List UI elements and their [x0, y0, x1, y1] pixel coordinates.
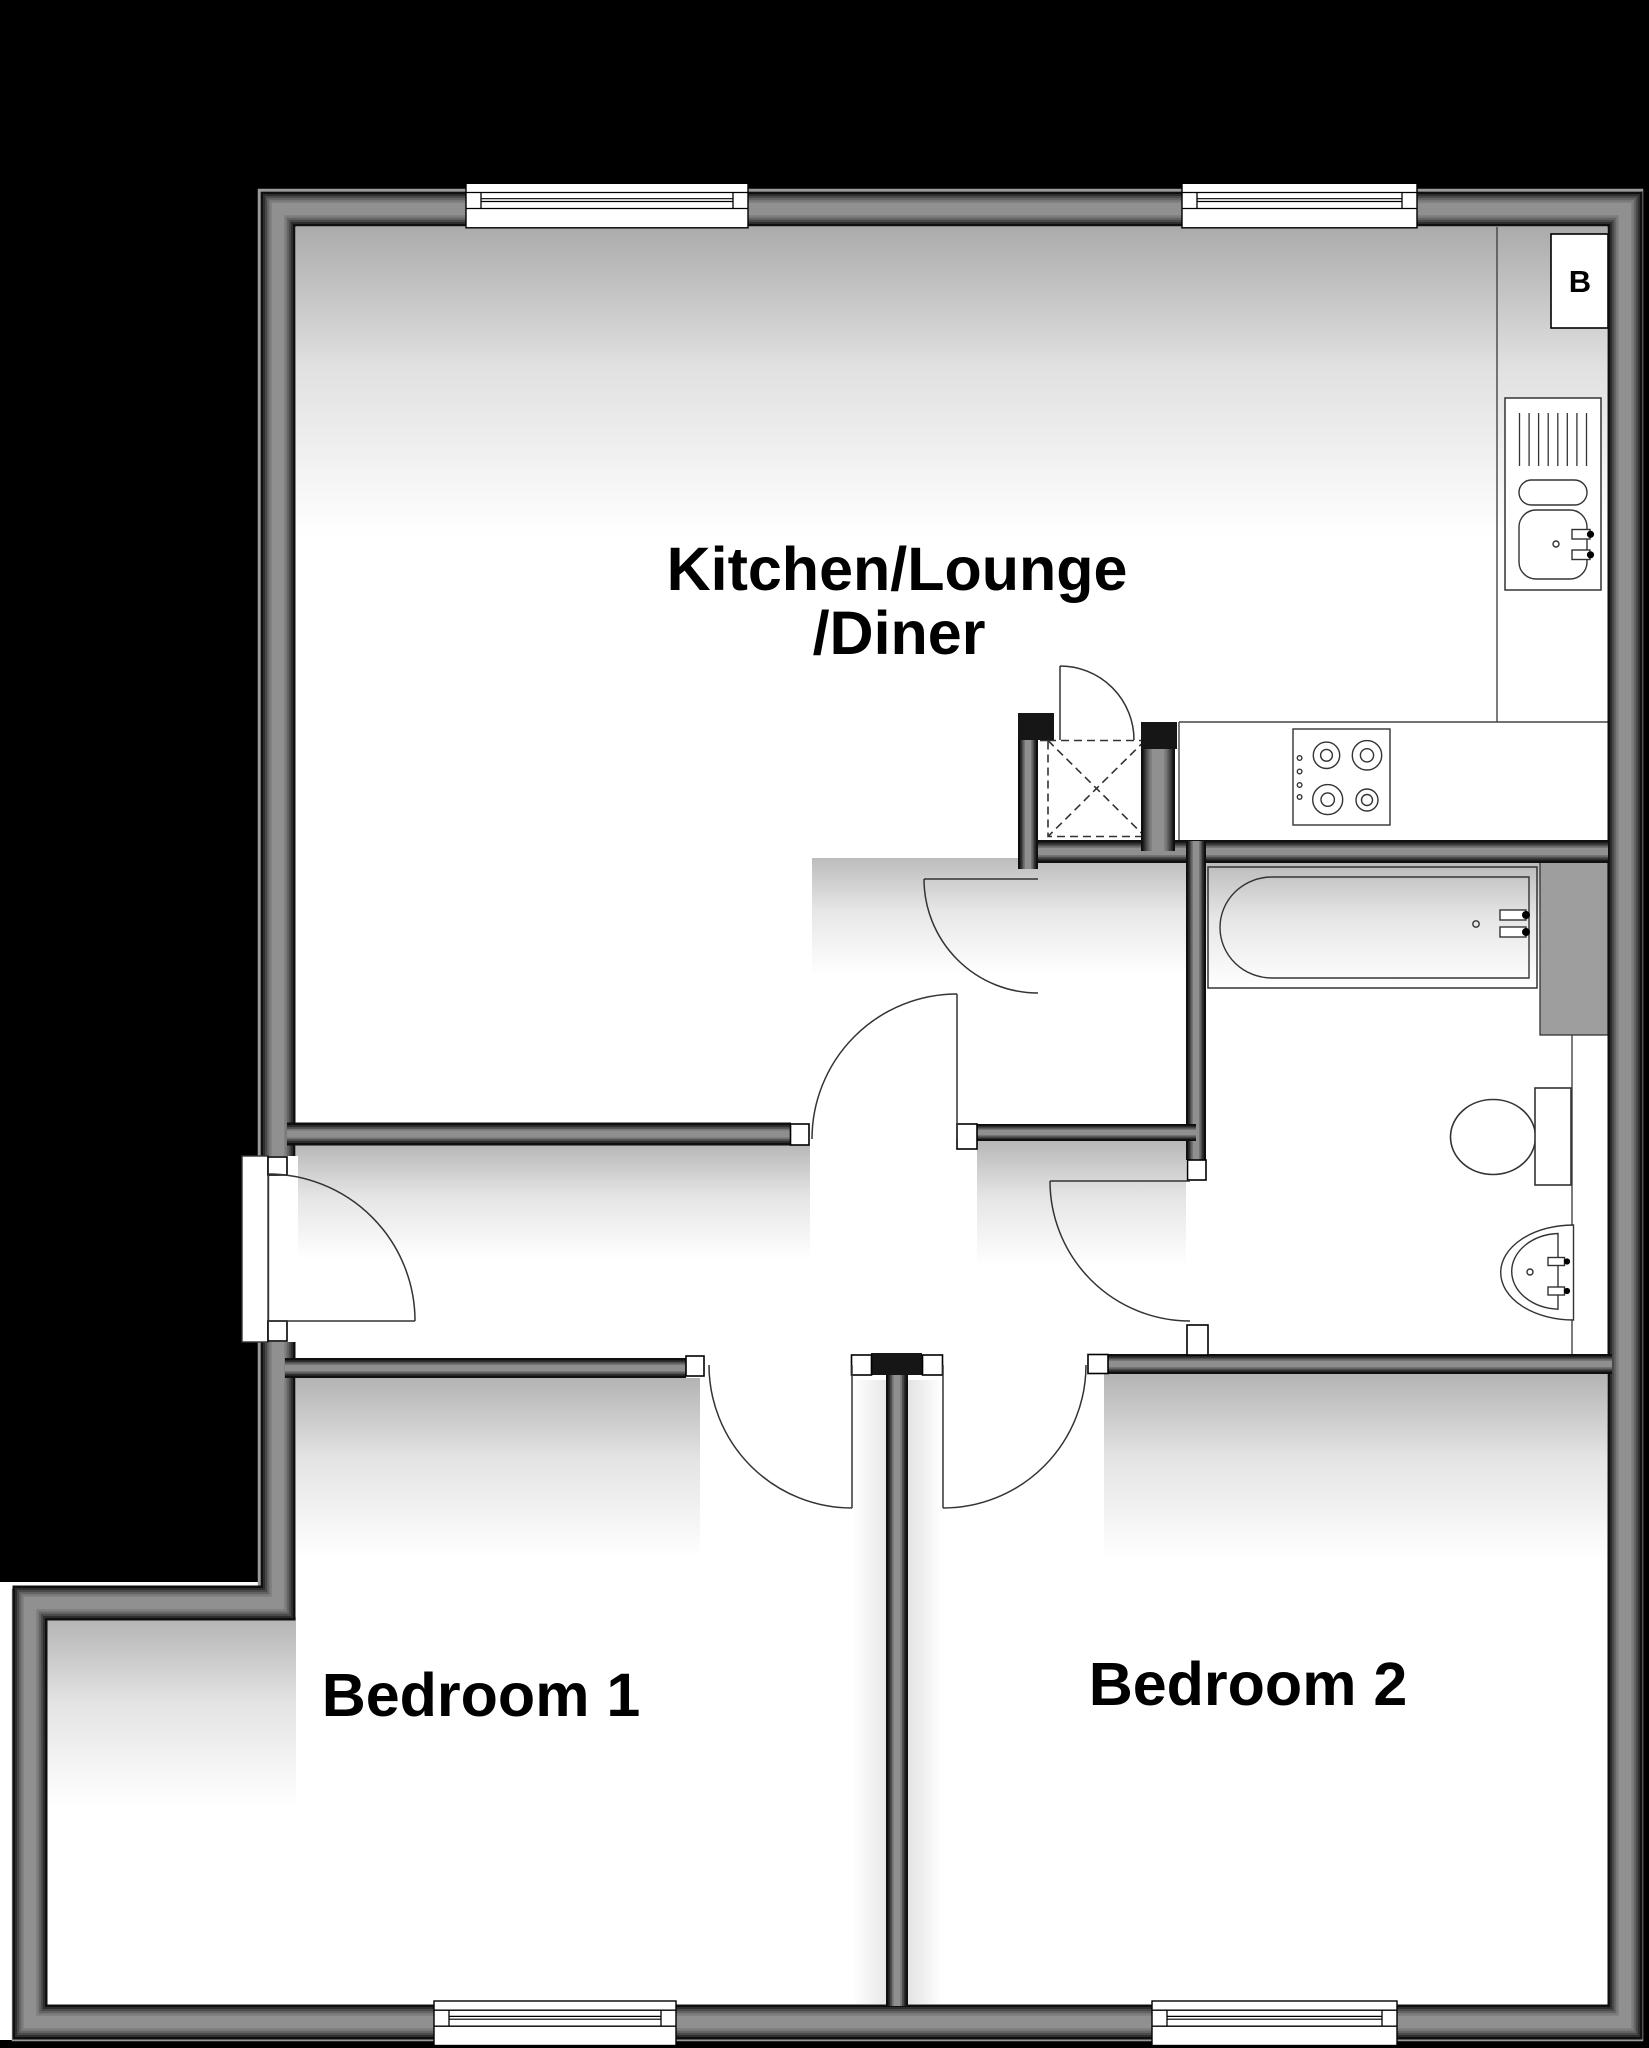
svg-text:Bedroom 1: Bedroom 1: [322, 1661, 641, 1729]
svg-text:Kitchen/Lounge: Kitchen/Lounge: [667, 535, 1128, 603]
svg-text:Bedroom 2: Bedroom 2: [1089, 1650, 1408, 1718]
svg-text:/Diner: /Diner: [813, 599, 986, 667]
svg-text:B: B: [1569, 264, 1591, 299]
